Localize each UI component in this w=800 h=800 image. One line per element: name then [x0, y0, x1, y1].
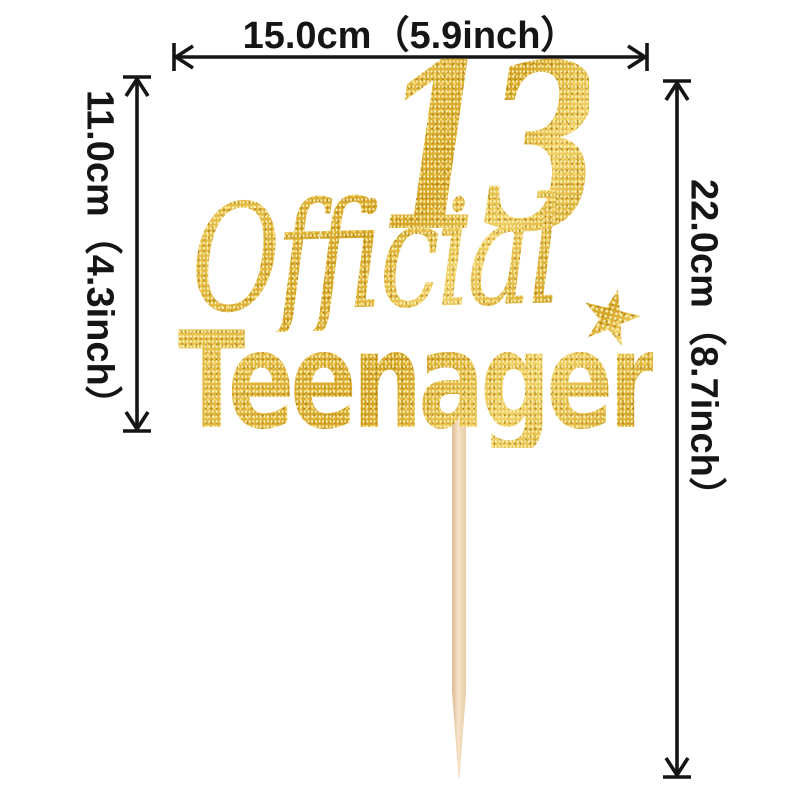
vertical-double-arrow-right-icon [660, 76, 694, 782]
product-image: 15.0cm（5.9inch） 11.0cm（4.3inch） 22.0cm（8… [0, 0, 800, 800]
wooden-stick [452, 418, 466, 778]
vertical-double-arrow-left-icon [120, 72, 154, 436]
left-height-label: 11.0cm（4.3inch） [76, 118, 124, 396]
